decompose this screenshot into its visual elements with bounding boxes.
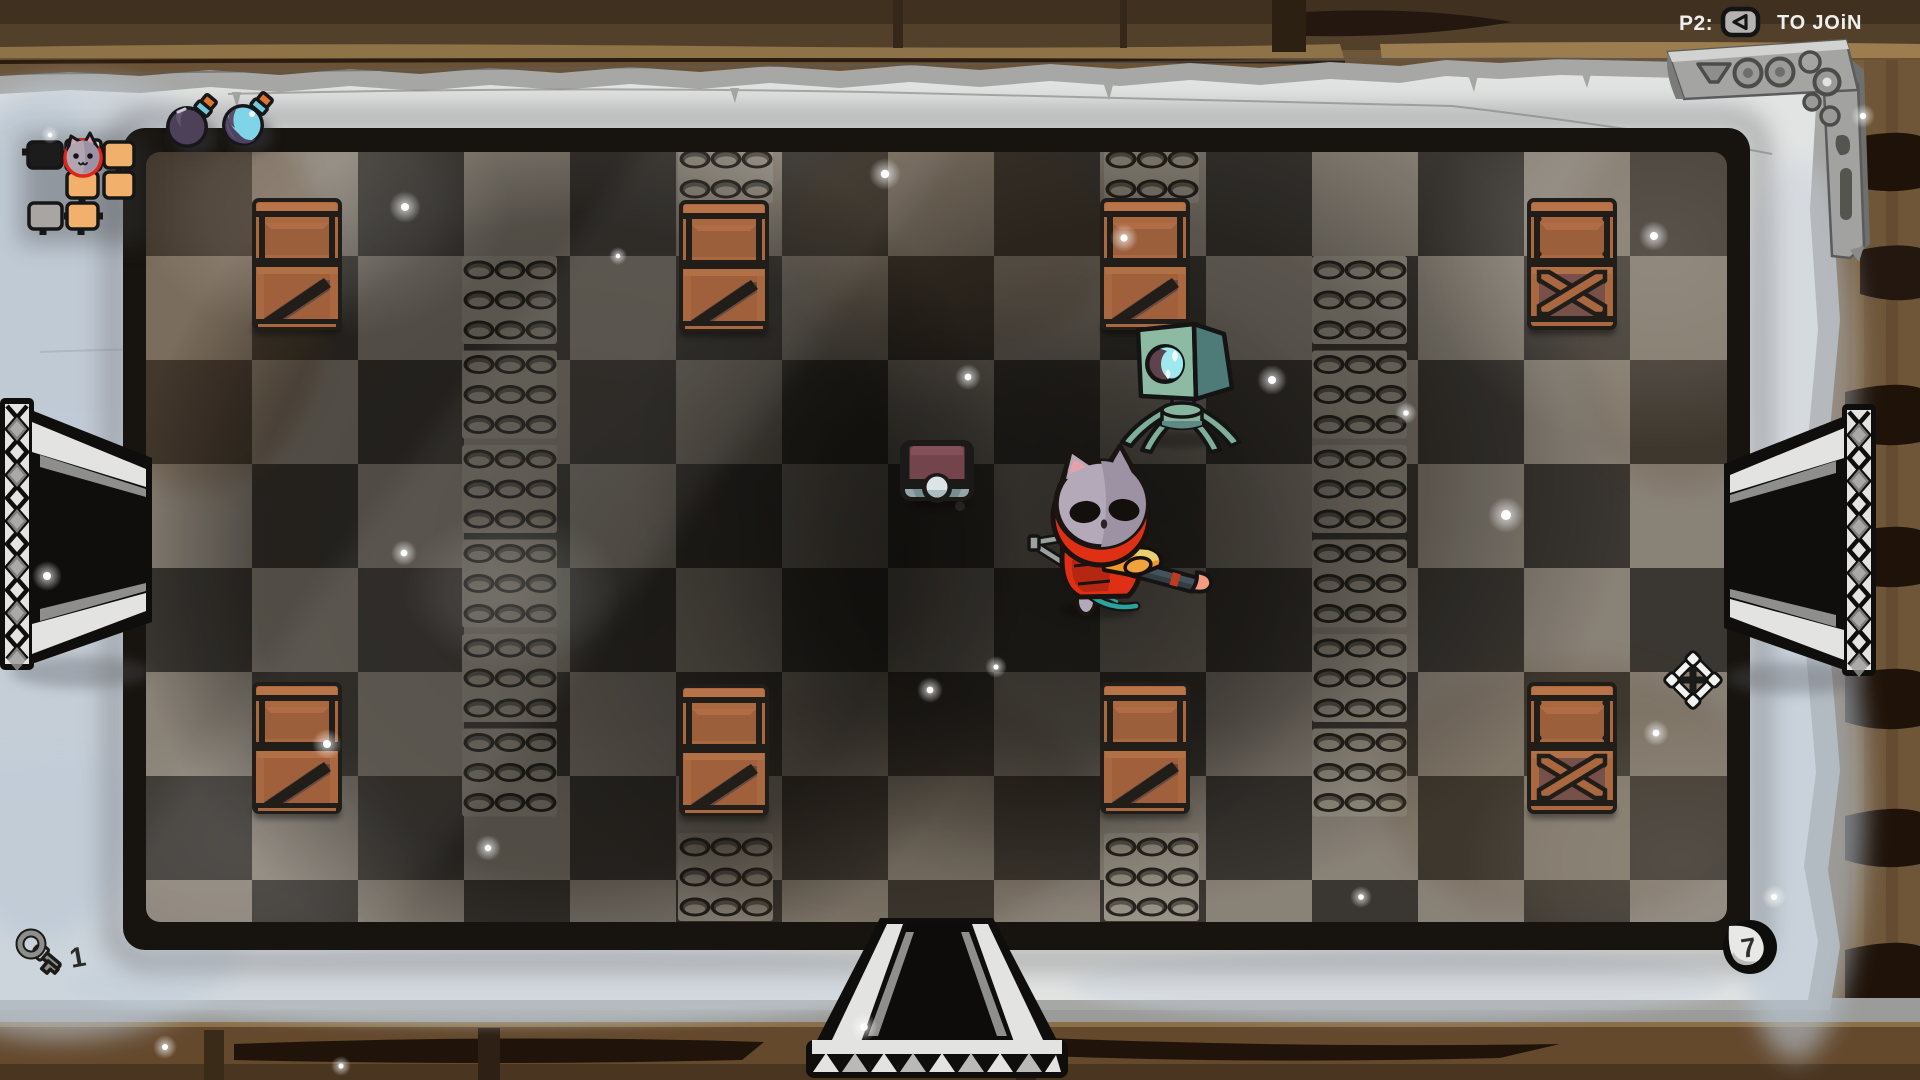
svg-text:P2:: P2:: [1679, 12, 1713, 35]
svg-text:TO JOiN: TO JOiN: [1777, 12, 1862, 34]
